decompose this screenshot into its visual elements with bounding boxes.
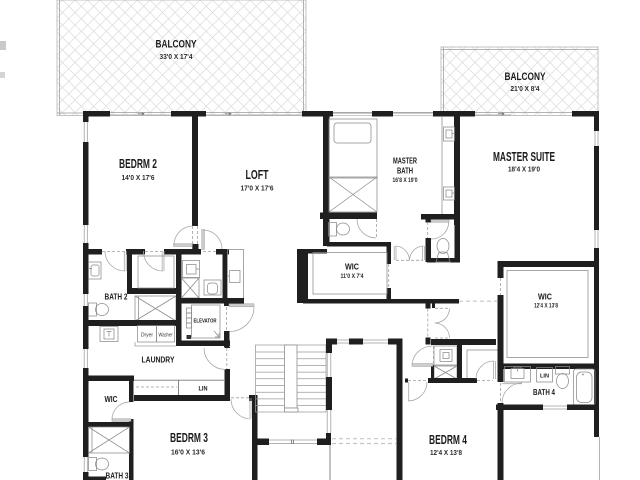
svg-text:33'0 X 17'4: 33'0 X 17'4	[160, 52, 194, 61]
svg-text:BALCONY: BALCONY	[156, 39, 197, 51]
svg-text:LAUNDRY: LAUNDRY	[142, 355, 175, 365]
svg-text:16'8 X 19'0: 16'8 X 19'0	[393, 177, 418, 184]
svg-text:BALCONY: BALCONY	[505, 71, 546, 83]
svg-text:Dryer: Dryer	[141, 333, 153, 339]
svg-text:11'0 X 7'4: 11'0 X 7'4	[341, 273, 364, 280]
svg-text:WIC: WIC	[105, 395, 118, 404]
svg-text:LOFT: LOFT	[246, 168, 269, 182]
svg-text:LIN: LIN	[199, 387, 208, 393]
svg-text:12'4 X 13'8: 12'4 X 13'8	[534, 303, 558, 310]
svg-text:16'0 X 13'6: 16'0 X 13'6	[171, 448, 205, 457]
svg-text:BEDRM 3: BEDRM 3	[170, 431, 208, 445]
svg-text:MASTER SUITE: MASTER SUITE	[493, 150, 555, 164]
svg-text:MASTER: MASTER	[393, 156, 417, 166]
svg-text:WIC: WIC	[345, 263, 359, 272]
svg-text:BEDRM 2: BEDRM 2	[119, 157, 157, 171]
svg-text:WIC: WIC	[538, 293, 552, 302]
svg-text:BATH 2: BATH 2	[105, 292, 128, 302]
svg-text:LIN: LIN	[540, 374, 549, 380]
svg-text:17'0 X 17'6: 17'0 X 17'6	[241, 184, 274, 193]
svg-text:BATH 4: BATH 4	[533, 387, 555, 397]
svg-text:BATH: BATH	[397, 166, 413, 176]
svg-text:18'4 X 19'0: 18'4 X 19'0	[508, 165, 540, 174]
svg-text:BATH 3: BATH 3	[106, 471, 129, 480]
svg-text:14'0 X 17'6: 14'0 X 17'6	[122, 173, 155, 182]
svg-text:BEDRM 4: BEDRM 4	[429, 433, 467, 447]
svg-text:12'4 X 13'8: 12'4 X 13'8	[430, 448, 462, 457]
svg-text:Washer: Washer	[159, 333, 173, 339]
svg-text:ELEVATOR: ELEVATOR	[194, 319, 218, 325]
svg-text:21'0 X 8'4: 21'0 X 8'4	[511, 84, 541, 93]
